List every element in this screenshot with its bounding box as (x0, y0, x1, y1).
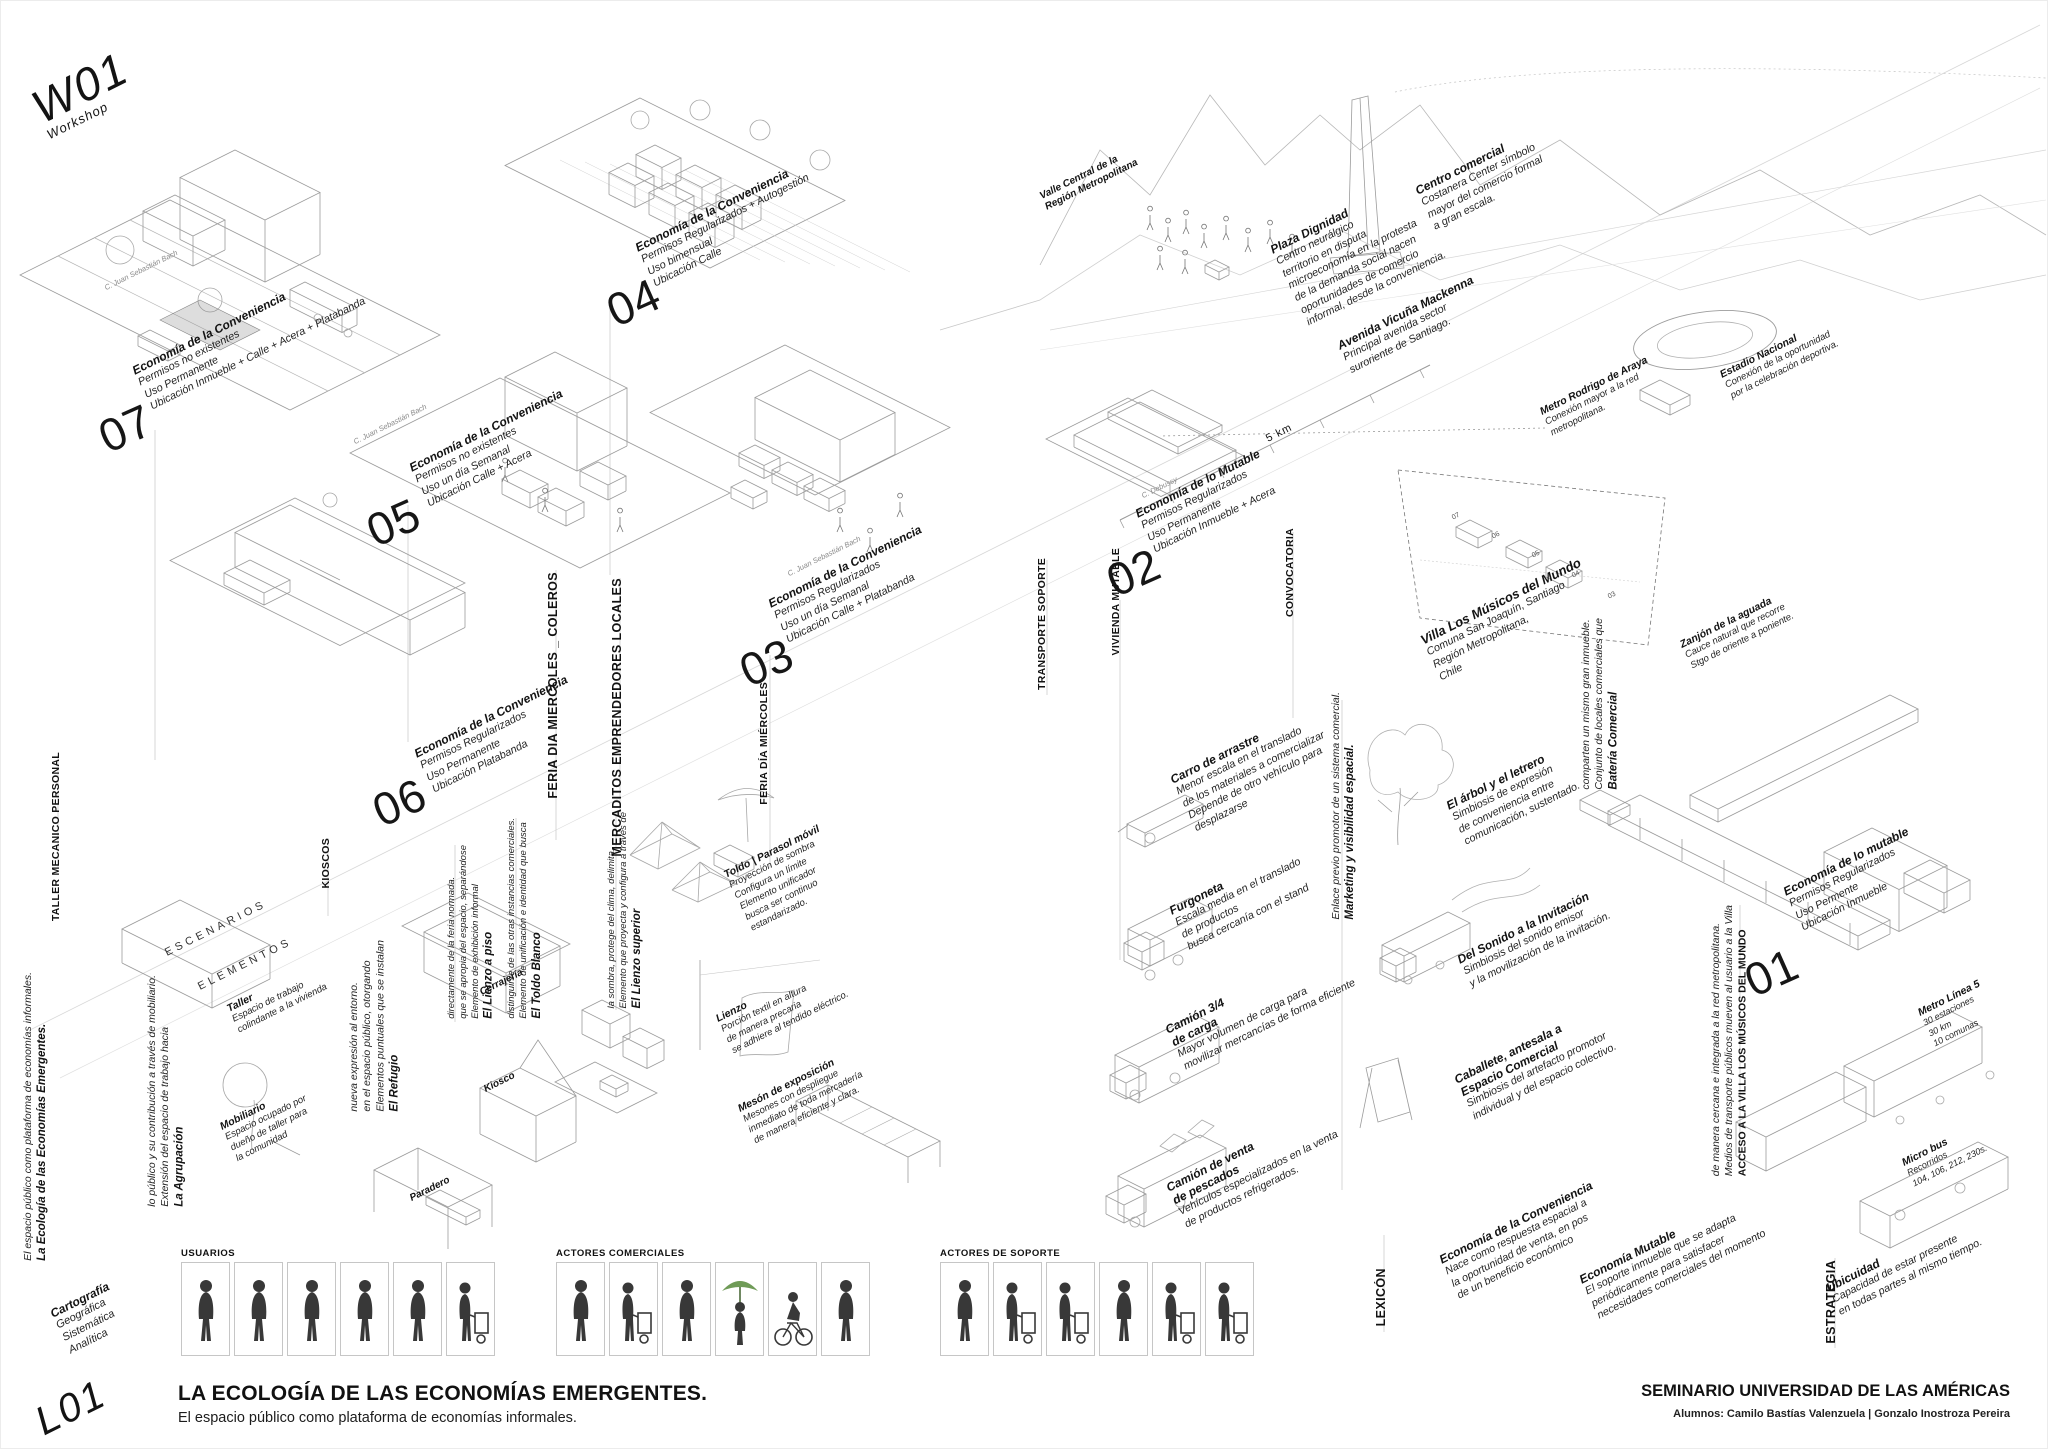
person-figure-icon (239, 1275, 279, 1355)
axis-convocatoria: CONVOCATORIA (1284, 528, 1296, 617)
strip-header-comerciales: ACTORES COMERCIALES (556, 1248, 685, 1259)
element-refugio: El Refugio Elementos puntuales que se in… (348, 940, 402, 1112)
element-toldo-blanco: El Toldo Blanco Elemento de unificación … (506, 818, 544, 1019)
person-umbrella-icon (720, 1275, 760, 1355)
strip-soporte (940, 1262, 1254, 1356)
person-figure-icon (398, 1275, 438, 1355)
strip-comerciales (556, 1262, 870, 1356)
person-figure-icon (186, 1275, 226, 1355)
side-title-block: La Ecología de las Economías Emergentes.… (22, 972, 50, 1261)
acceso-villa-body: Medios de transporte públicos mueven al … (1710, 905, 1736, 1176)
person-cart-icon (1157, 1275, 1197, 1355)
figure-box (393, 1262, 442, 1356)
figure-box (940, 1262, 989, 1356)
person-figure-icon (667, 1275, 707, 1355)
poster-title: LA ECOLOGÍA DE LAS ECONOMÍAS EMERGENTES. (178, 1382, 707, 1406)
figure-box (556, 1262, 605, 1356)
figure-box (768, 1262, 817, 1356)
person-figure-icon (826, 1275, 866, 1355)
marketing-block: Marketing y visibilidad espacial. Enlace… (1330, 692, 1358, 920)
strip-header-soporte: ACTORES DE SOPORTE (940, 1248, 1060, 1259)
axis-transporte-soporte: TRANSPORTE SOPORTE (1036, 558, 1048, 690)
element-lienzo-superior: El Lienzo superior Elemento que proyecta… (606, 812, 644, 1008)
figure-box (1099, 1262, 1148, 1356)
person-cart-icon (1051, 1275, 1091, 1355)
axis-kioscos: KIOSCOS (320, 838, 332, 889)
person-cart-icon (998, 1275, 1038, 1355)
strip-usuarios (181, 1262, 495, 1356)
figure-box (821, 1262, 870, 1356)
acceso-villa-block: ACCESO A LA VILLA LOS MÚSICOS DEL MUNDO … (1710, 905, 1749, 1176)
figure-box (993, 1262, 1042, 1356)
figure-box (234, 1262, 283, 1356)
element-lienzo-piso: El Lienzo a piso Elemento de exhibición … (446, 845, 496, 1019)
poster-canvas: W01 Workshop 07 05 06 04 03 02 01 Econom… (0, 0, 2048, 1449)
students-credit: Alumnos: Camilo Bastías Valenzuela | Gon… (1490, 1408, 2010, 1420)
axis-taller-mecanico: TALLER MECANICO PERSONAL (50, 752, 62, 921)
seminar-credit: SEMINARIO UNIVERSIDAD DE LAS AMÉRICAS (1490, 1382, 2010, 1401)
figure-box (609, 1262, 658, 1356)
figure-box (1152, 1262, 1201, 1356)
axis-feria-miercoles: FERIA DÍA MIÉRCOLES (758, 682, 770, 805)
person-figure-icon (945, 1275, 985, 1355)
marketing-title: Marketing y visibilidad espacial. (1343, 692, 1357, 920)
person-cart-icon (451, 1275, 491, 1355)
person-figure-icon (1104, 1275, 1144, 1355)
axis-feria-coleros: FERIA DIA MIERCOLES _ COLEROS (546, 572, 560, 799)
figure-box (662, 1262, 711, 1356)
figure-box (446, 1262, 495, 1356)
poster-subtitle: El espacio público como plataforma de ec… (178, 1410, 577, 1426)
strip-header-usuarios: USUARIOS (181, 1248, 235, 1259)
person-cart-icon (1210, 1275, 1250, 1355)
acceso-villa-title: ACCESO A LA VILLA LOS MÚSICOS DEL MUNDO (1736, 905, 1749, 1176)
axis-vivienda-mutable: VIVIENDA MUTABLE (1110, 548, 1122, 655)
figure-box (340, 1262, 389, 1356)
map-bateria-comercial: Batería Comercial Conjunto de locales co… (1580, 618, 1621, 790)
figure-box (1205, 1262, 1254, 1356)
person-figure-icon (561, 1275, 601, 1355)
figure-box (181, 1262, 230, 1356)
person-figure-icon (345, 1275, 385, 1355)
axis-lexicon: LEXICÓN (1374, 1268, 1388, 1326)
person-bicycle-icon (773, 1275, 813, 1355)
element-agrupacion: La Agrupación Extensión del espacio de t… (146, 975, 187, 1207)
marketing-body: Enlace previo promotor de un sistema com… (1330, 692, 1343, 920)
person-figure-icon (292, 1275, 332, 1355)
figure-box (1046, 1262, 1095, 1356)
person-cart-icon (614, 1275, 654, 1355)
figure-box (287, 1262, 336, 1356)
figure-box (715, 1262, 764, 1356)
